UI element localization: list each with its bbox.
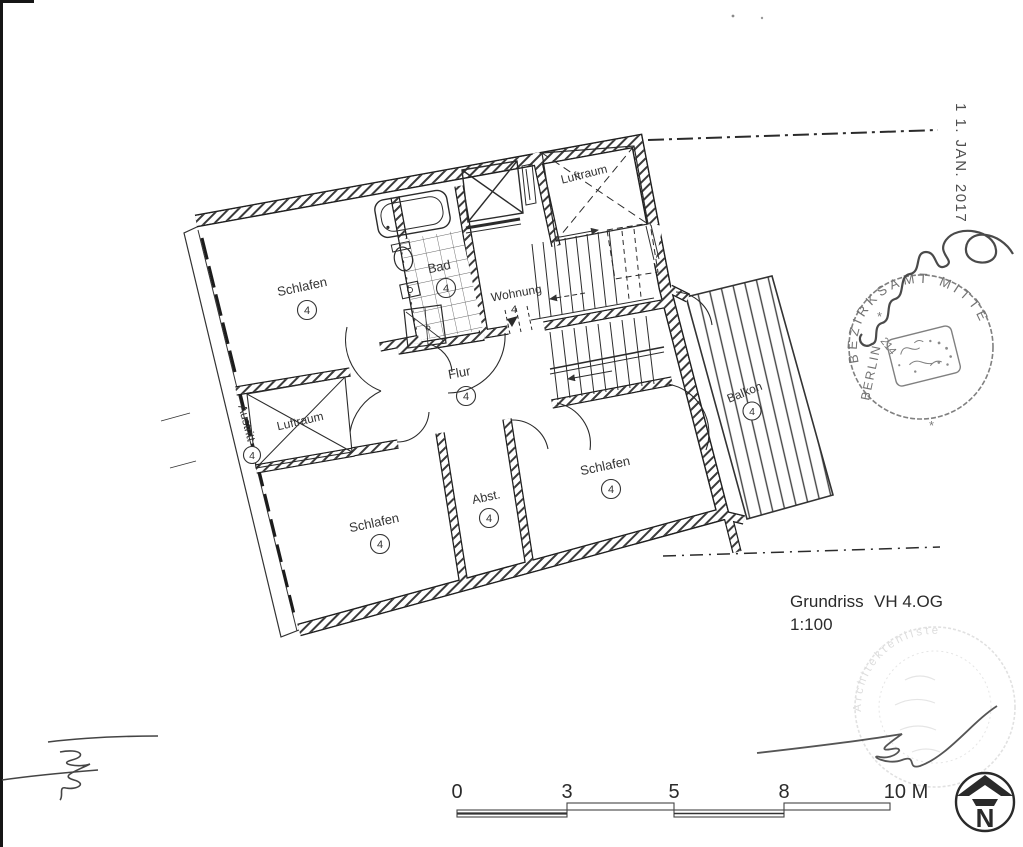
stamp-berlin-text: BERLIN [858, 343, 884, 402]
svg-text:Luftraum: Luftraum [275, 409, 324, 433]
svg-text:4: 4 [249, 450, 255, 462]
svg-text:4: 4 [511, 304, 517, 316]
floorplan-drawing: Schlafen 4 Bad 4 Wohnung 4 Luftraum Flur… [0, 0, 1023, 847]
official-stamp: BEZIRKSAMT MITTE BERLIN 214 * * [845, 271, 993, 433]
svg-text:4: 4 [463, 391, 469, 403]
stamp-star: * [877, 309, 882, 324]
svg-text:4: 4 [443, 283, 449, 295]
stamp-arc-text: BEZIRKSAMT MITTE [845, 271, 993, 365]
signature-scribble-bottom-right [757, 706, 997, 767]
svg-text:Abst.: Abst. [471, 487, 502, 507]
scale-bar: 0 3 5 8 10 M [451, 781, 928, 817]
svg-text:Schlafen: Schlafen [348, 510, 401, 535]
svg-text:Schlafen: Schlafen [276, 274, 329, 299]
scale-end-label: 10 M [884, 781, 928, 803]
svg-text:4: 4 [304, 305, 310, 317]
svg-text:4: 4 [486, 513, 492, 525]
caption-title: Grundriss [790, 592, 864, 611]
room-label-austritt: Austritt 4 [235, 403, 260, 463]
room-label-flur: Flur 4 [447, 363, 476, 405]
scale-tick-3: 3 [561, 781, 572, 803]
room-label-schlafen-bottom-right: Schlafen 4 [579, 453, 632, 498]
svg-text:Wohnung: Wohnung [490, 282, 543, 305]
caption-scale: 1:100 [790, 615, 833, 634]
room-label-luftraum-bottom-left: Luftraum [275, 409, 324, 433]
scale-tick-8: 8 [778, 781, 789, 803]
north-label: N [976, 803, 995, 833]
svg-text:1 1. JAN. 2017: 1 1. JAN. 2017 [952, 103, 969, 223]
svg-text:4: 4 [749, 406, 755, 418]
bathtub-icon [373, 189, 451, 239]
north-arrow: N [956, 773, 1014, 833]
signature-scribble-bottom-left [2, 736, 158, 800]
room-label-schlafen-top-left: Schlafen 4 [276, 274, 329, 319]
room-label-schlafen-bottom-left: Schlafen 4 [348, 510, 401, 553]
scan-edge-artifacts [0, 0, 763, 847]
stamp-star: * [929, 418, 934, 433]
architect-stamp: Architektenliste [852, 625, 1015, 787]
svg-text:Schlafen: Schlafen [579, 453, 632, 478]
svg-text:Architektenliste: Architektenliste [852, 625, 941, 712]
room-label-luftraum-top-right: Luftraum [559, 162, 608, 187]
svg-text:Austritt: Austritt [235, 403, 258, 443]
stamp-bear-emblem [886, 325, 962, 388]
room-label-abst: Abst. 4 [471, 487, 502, 527]
svg-text:Flur: Flur [447, 363, 472, 382]
svg-text:4: 4 [608, 484, 614, 496]
scale-tick-5: 5 [668, 781, 679, 803]
apartment-label-wohnung: Wohnung 4 [490, 282, 543, 327]
svg-text:Luftraum: Luftraum [559, 162, 608, 187]
svg-text:BEZIRKSAMT MITTE: BEZIRKSAMT MITTE [845, 271, 993, 365]
scanned-floorplan-page: Schlafen 4 Bad 4 Wohnung 4 Luftraum Flur… [0, 0, 1023, 847]
scale-tick-0: 0 [451, 781, 462, 803]
date-stamp: 1 1. JAN. 2017 [952, 103, 969, 223]
svg-text:4: 4 [377, 539, 383, 551]
caption-variant: VH 4.OG [874, 592, 943, 611]
architect-stamp-arc-text: Architektenliste [852, 625, 941, 712]
